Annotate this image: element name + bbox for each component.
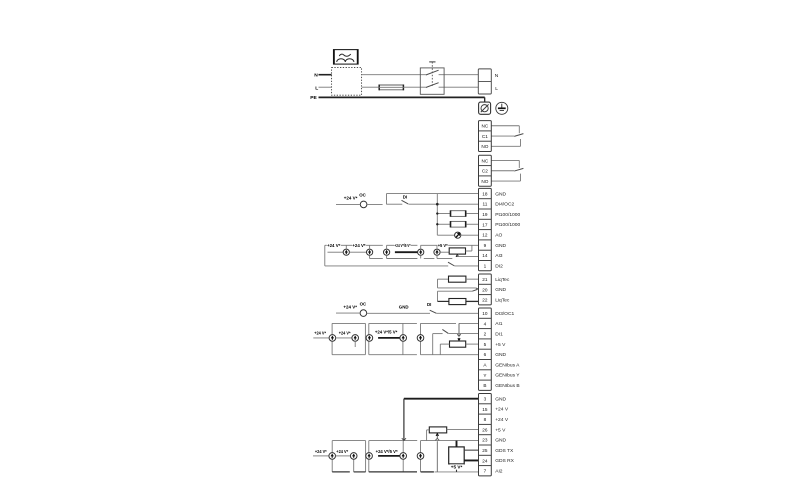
svg-text:GDS TX: GDS TX (495, 448, 514, 454)
svg-text:N: N (495, 73, 499, 79)
svg-text:AI3: AI3 (495, 253, 503, 259)
svg-text:12: 12 (482, 233, 488, 238)
svg-text:+24 V*: +24 V* (339, 330, 351, 335)
svg-text:7: 7 (484, 469, 487, 474)
svg-text:AO: AO (495, 233, 502, 239)
svg-text:GDS RX: GDS RX (495, 458, 514, 464)
svg-text:GND: GND (399, 305, 409, 310)
svg-text:15: 15 (482, 407, 488, 412)
svg-text:+24 V*/5 V*: +24 V*/5 V* (394, 243, 410, 248)
svg-text:L: L (315, 85, 318, 91)
svg-text:NC: NC (482, 158, 489, 163)
svg-text:18: 18 (482, 191, 488, 196)
svg-text:N: N (314, 72, 318, 78)
svg-text:+24 V: +24 V (495, 417, 509, 423)
svg-text:22: 22 (482, 298, 488, 303)
svg-text:L: L (495, 86, 498, 92)
svg-text:LiqTec: LiqTec (495, 277, 510, 283)
svg-text:3: 3 (484, 396, 487, 401)
svg-text:+24 V*/5 V*: +24 V*/5 V* (375, 330, 398, 335)
svg-text:8: 8 (484, 417, 487, 422)
svg-text:24: 24 (482, 458, 488, 463)
svg-text:23: 23 (482, 438, 488, 443)
svg-text:14: 14 (482, 253, 488, 258)
svg-text:+24 V: +24 V (495, 407, 509, 413)
svg-text:9: 9 (484, 243, 487, 248)
svg-text:4: 4 (484, 321, 487, 326)
svg-text:17: 17 (482, 222, 488, 227)
svg-text:11: 11 (482, 202, 487, 207)
svg-text:AI2: AI2 (495, 469, 503, 475)
svg-text:20: 20 (482, 287, 488, 292)
svg-text:+5 V*: +5 V* (451, 465, 463, 470)
svg-text:DI2: DI2 (495, 263, 503, 269)
svg-text:NO: NO (481, 144, 488, 149)
svg-text:+24 V*: +24 V* (352, 243, 365, 248)
svg-text:GND: GND (495, 243, 506, 249)
svg-text:+24 V*: +24 V* (314, 330, 326, 335)
svg-text:+24 V*: +24 V* (315, 449, 327, 454)
svg-text:DI: DI (427, 302, 431, 307)
svg-text:DI1: DI1 (495, 332, 503, 338)
svg-text:26: 26 (482, 427, 488, 432)
svg-text:Pt100/1000: Pt100/1000 (495, 212, 520, 218)
svg-text:25: 25 (482, 448, 488, 453)
svg-text:+5 V*: +5 V* (438, 243, 448, 248)
svg-text:2: 2 (484, 332, 487, 337)
svg-text:+24 V*: +24 V* (343, 304, 357, 309)
svg-text:NO: NO (481, 179, 488, 184)
svg-text:NC: NC (482, 124, 489, 129)
svg-text:DI: DI (403, 194, 407, 199)
svg-text:6: 6 (484, 352, 487, 357)
svg-text:GND: GND (495, 438, 506, 444)
svg-text:PE: PE (310, 95, 317, 101)
svg-text:OC: OC (360, 302, 367, 307)
svg-text:GND: GND (495, 191, 506, 197)
svg-text:+5 V: +5 V (495, 427, 506, 433)
svg-text:GENIbus A: GENIbus A (495, 362, 520, 368)
svg-text:+24 V*/5 V*: +24 V*/5 V* (376, 449, 398, 454)
svg-text:10: 10 (482, 311, 488, 316)
svg-text:DI3/OC1: DI3/OC1 (495, 311, 514, 317)
svg-text:GND: GND (495, 287, 506, 293)
svg-text:B: B (483, 383, 486, 388)
svg-text:C1: C1 (482, 134, 488, 139)
svg-text:+24 V*: +24 V* (344, 195, 358, 200)
svg-text:AI1: AI1 (495, 321, 503, 327)
svg-text:C2: C2 (482, 169, 488, 174)
svg-text:GND: GND (495, 352, 506, 358)
svg-text:OC: OC (359, 193, 366, 198)
svg-text:19: 19 (482, 212, 488, 217)
svg-text:GND: GND (495, 396, 506, 402)
svg-text:1: 1 (484, 263, 487, 268)
svg-text:+24 V*: +24 V* (336, 449, 348, 454)
svg-text:GENIbus B: GENIbus B (495, 383, 519, 389)
svg-text:LiqTec: LiqTec (495, 298, 510, 304)
svg-text:+24 V*: +24 V* (327, 243, 340, 248)
svg-text:Pt100/1000: Pt100/1000 (495, 222, 520, 228)
svg-text:5: 5 (484, 342, 487, 347)
svg-text:21: 21 (482, 277, 488, 282)
svg-text:+5 V: +5 V (495, 342, 506, 348)
svg-text:GENIbus Y: GENIbus Y (495, 373, 520, 379)
svg-text:DI4/OC2: DI4/OC2 (495, 202, 514, 208)
